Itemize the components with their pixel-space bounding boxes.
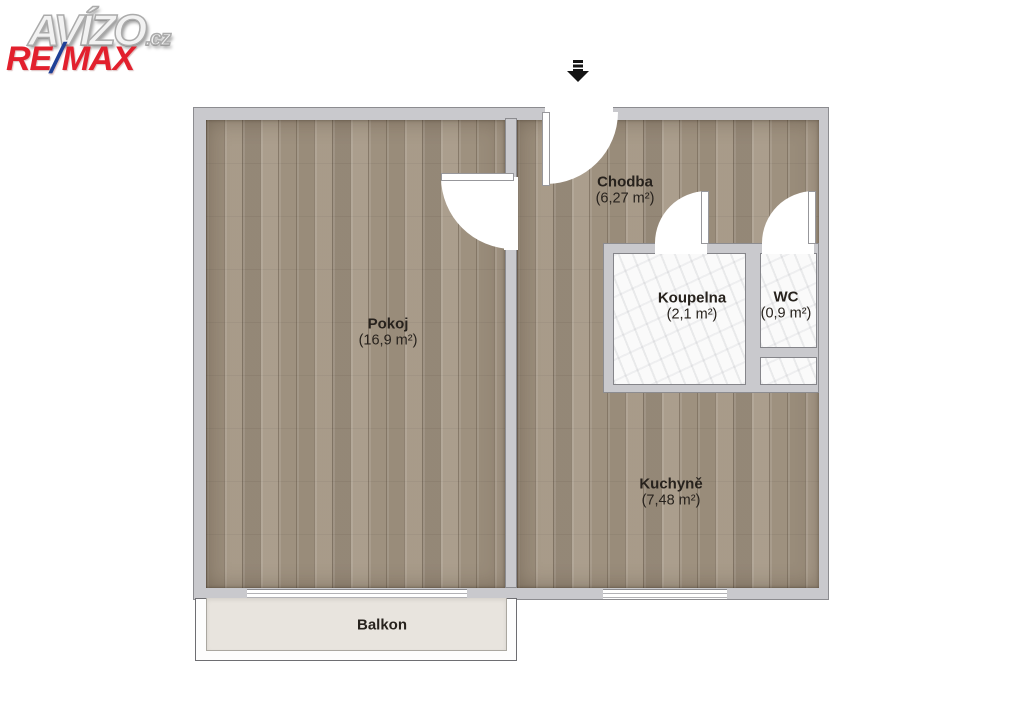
wc-door-leaf [808, 191, 816, 244]
kitchen-window-icon [603, 589, 727, 600]
remax-logo-re: RE [6, 40, 51, 78]
entrance-arrow-head-icon [567, 71, 589, 82]
wc-door-opening [762, 242, 814, 254]
room-area-kuchyne: (7,48 m²) [639, 493, 702, 509]
koupelna-door-opening [655, 242, 707, 254]
remax-logo-max: MAX [62, 40, 135, 78]
room-name-koupelna: Koupelna [658, 290, 726, 307]
remax-logo: RE/MAX [6, 40, 134, 79]
room-label-kuchyne: Kuchyně (7,48 m²) [639, 476, 702, 509]
koupelna-door-leaf [701, 191, 709, 244]
room-name-pokoj: Pokoj [359, 316, 418, 333]
room-label-balkon: Balkon [357, 617, 407, 634]
room-label-koupelna: Koupelna (2,1 m²) [658, 290, 726, 323]
room-name-kuchyne: Kuchyně [639, 476, 702, 493]
room-area-koupelna: (2,1 m²) [658, 307, 726, 323]
room-label-chodba: Chodba (6,27 m²) [596, 174, 655, 207]
pokoj-door-leaf [441, 173, 514, 181]
floorplan-page: AVÍZO.cz RE/MAX Pokoj (16,9 m²) Chodba (… [0, 0, 1024, 724]
room-name-chodba: Chodba [596, 174, 655, 191]
room-label-pokoj: Pokoj (16,9 m²) [359, 316, 418, 349]
room-name-wc: WC [761, 289, 812, 306]
room-area-chodba: (6,27 m²) [596, 191, 655, 207]
room-area-wc: (0,9 m²) [761, 306, 812, 322]
room-label-wc: WC (0,9 m²) [761, 289, 812, 322]
room-name-balkon: Balkon [357, 617, 407, 634]
entrance-door-leaf [542, 112, 550, 186]
shaft-floor [760, 357, 817, 385]
room-area-pokoj: (16,9 m²) [359, 333, 418, 349]
avizo-logo-suffix: .cz [145, 27, 170, 50]
